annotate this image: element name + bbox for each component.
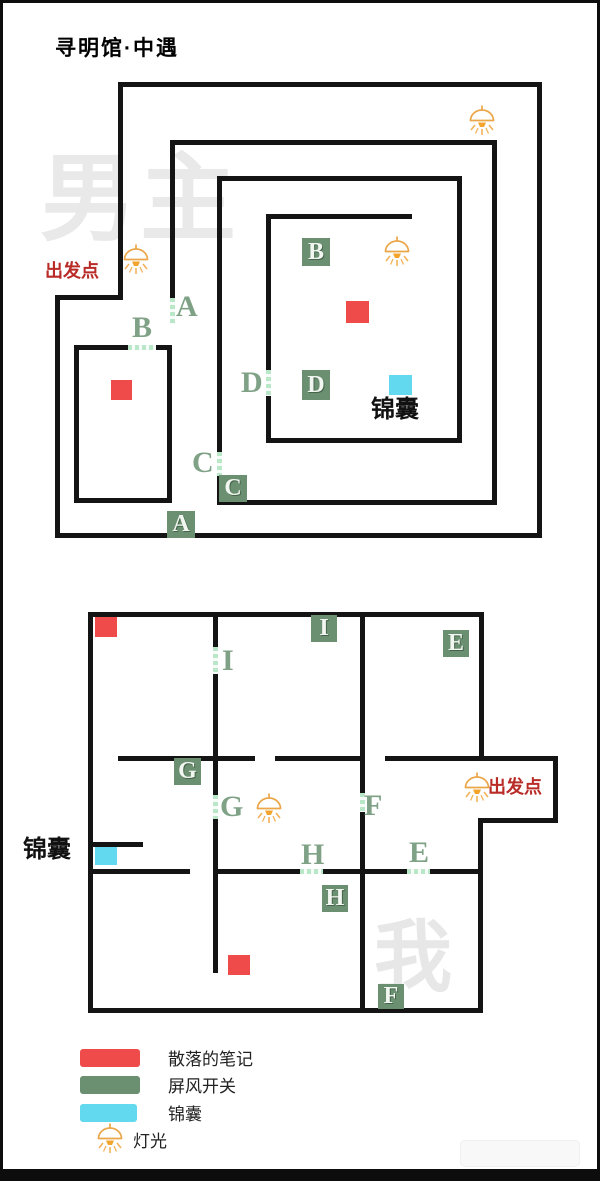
switch-square-letter: A bbox=[172, 511, 189, 538]
pouch-marker bbox=[95, 847, 117, 865]
m2-hwall-right bbox=[323, 869, 365, 874]
watermark-top: 男主 bbox=[40, 152, 240, 248]
m1-door-B bbox=[128, 345, 156, 350]
door-letter-G: G bbox=[220, 792, 243, 822]
page-border-left bbox=[0, 0, 3, 1181]
pouch-marker bbox=[389, 375, 412, 395]
door-letter-B: B bbox=[132, 313, 152, 343]
m1-room-right-wall bbox=[167, 345, 172, 503]
m2-notch-bottom-wall bbox=[478, 818, 558, 823]
lamp-icon bbox=[382, 235, 412, 269]
switch-square-C: C bbox=[219, 475, 247, 502]
note-marker bbox=[228, 955, 250, 975]
m2-door-E bbox=[407, 869, 430, 874]
m1-outer-right-wall bbox=[537, 82, 542, 538]
switch-square-G: G bbox=[174, 758, 201, 785]
m2-right-upper-wall bbox=[479, 612, 484, 761]
m2-mid-right-wall bbox=[385, 756, 558, 761]
door-letter-I: I bbox=[222, 646, 234, 676]
door-letter-F: F bbox=[364, 791, 382, 821]
m1-room-left-wall bbox=[74, 345, 79, 503]
switch-square-D: D bbox=[302, 370, 330, 400]
m2-divider2-lower-wall bbox=[360, 812, 365, 1013]
switch-square-letter: G bbox=[178, 758, 197, 785]
m2-mid-center-wall bbox=[275, 756, 365, 761]
m1-outer-notch-wall bbox=[55, 295, 123, 300]
m2-hwall-left bbox=[215, 869, 300, 874]
legend-label: 锦囊 bbox=[168, 1100, 202, 1125]
m1-outer-left-lower-wall bbox=[55, 295, 60, 538]
pouch-label: 锦囊 bbox=[23, 838, 71, 862]
m2-divider1-lower-wall bbox=[213, 819, 218, 973]
m1-inner-left-lower-wall bbox=[266, 396, 271, 443]
switch-square-letter: I bbox=[319, 615, 328, 642]
m1-spiral2-right-wall bbox=[492, 140, 497, 505]
legend-row-notes: 散落的笔记 bbox=[80, 1045, 253, 1070]
m1-spiral2-bottom-wall bbox=[217, 500, 497, 505]
page-title: 寻明馆·中遇 bbox=[55, 32, 179, 62]
m1-inner-left-upper-wall bbox=[266, 214, 271, 370]
switch-square-E: E bbox=[443, 630, 469, 657]
m1-spiral2-left-wall bbox=[170, 140, 175, 298]
m2-shelf-lower-wall bbox=[92, 869, 190, 874]
page-border-top bbox=[0, 0, 600, 3]
m1-outer-bottom-wall bbox=[55, 533, 542, 538]
lamp-icon bbox=[121, 243, 151, 277]
m1-spiral2-top-wall bbox=[170, 140, 497, 145]
legend-label: 散落的笔记 bbox=[168, 1045, 253, 1070]
m1-room-bottom-wall bbox=[74, 498, 172, 503]
m1-inner-top-wall bbox=[266, 214, 412, 219]
faint-watermark bbox=[460, 1140, 580, 1167]
switch-square-letter: F bbox=[384, 983, 399, 1010]
legend-row-switch: 屏风开关 bbox=[80, 1072, 236, 1097]
m1-door-A bbox=[170, 298, 175, 324]
switch-square-letter: C bbox=[224, 475, 241, 502]
m2-divider2-upper-wall bbox=[360, 612, 365, 793]
m2-top-wall bbox=[88, 612, 484, 617]
lamp-icon bbox=[95, 1122, 125, 1156]
switch-square-letter: D bbox=[307, 372, 324, 399]
m2-right-lower-wall bbox=[478, 818, 483, 1013]
switch-square-F: F bbox=[378, 984, 404, 1009]
switch-square-letter: E bbox=[448, 630, 464, 657]
m2-divider1-upper-wall bbox=[213, 612, 218, 647]
m2-bottom-wall bbox=[88, 1008, 483, 1013]
switch-square-I: I bbox=[311, 615, 337, 642]
m2-ewall-left bbox=[365, 869, 407, 874]
game-maze-guide: { "title": "寻明馆·中遇", "watermark_top": "男… bbox=[0, 0, 600, 1181]
switch-square-H: H bbox=[322, 885, 348, 912]
m1-door-D bbox=[266, 370, 271, 396]
switch-square-A: A bbox=[167, 511, 195, 538]
m1-spiral3-top-wall bbox=[217, 176, 462, 181]
door-letter-E: E bbox=[409, 838, 429, 868]
note-marker bbox=[111, 380, 132, 400]
switch-swatch bbox=[80, 1076, 140, 1094]
m1-door-C bbox=[217, 452, 222, 476]
legend-label: 灯光 bbox=[133, 1127, 167, 1152]
switch-square-B: B bbox=[302, 238, 330, 266]
m2-notch-right-wall bbox=[553, 756, 558, 823]
m1-room-top-left-wall bbox=[74, 345, 128, 350]
m1-inner-bottom-wall bbox=[266, 438, 462, 443]
note-swatch bbox=[80, 1049, 140, 1067]
note-marker bbox=[95, 617, 117, 637]
m1-spiral3-right-wall bbox=[457, 176, 462, 443]
lamp-icon bbox=[254, 792, 284, 826]
door-letter-H: H bbox=[301, 840, 324, 870]
legend-label: 屏风开关 bbox=[168, 1072, 236, 1097]
switch-square-letter: H bbox=[326, 885, 345, 912]
m2-left-wall bbox=[88, 612, 93, 1013]
note-marker bbox=[346, 301, 369, 323]
start-point-label: 出发点 bbox=[488, 778, 542, 796]
m2-door-G bbox=[213, 795, 218, 819]
switch-square-letter: B bbox=[308, 239, 324, 266]
door-letter-D: D bbox=[241, 368, 263, 398]
page-border-bottom bbox=[0, 1169, 600, 1181]
pouch-swatch bbox=[80, 1104, 137, 1122]
m1-outer-top-wall bbox=[118, 82, 542, 87]
m1-spiral3-left-upper-wall bbox=[217, 176, 222, 452]
m2-door-I bbox=[213, 647, 218, 674]
legend-row-lamp: 灯光 bbox=[80, 1122, 167, 1156]
door-letter-C: C bbox=[192, 448, 214, 478]
m2-divider1-mid-wall bbox=[213, 674, 218, 795]
start-point-label: 出发点 bbox=[45, 262, 99, 280]
m2-ewall-right bbox=[430, 869, 478, 874]
lamp-icon bbox=[467, 104, 497, 138]
pouch-label: 锦囊 bbox=[371, 398, 419, 422]
door-letter-A: A bbox=[176, 292, 198, 322]
